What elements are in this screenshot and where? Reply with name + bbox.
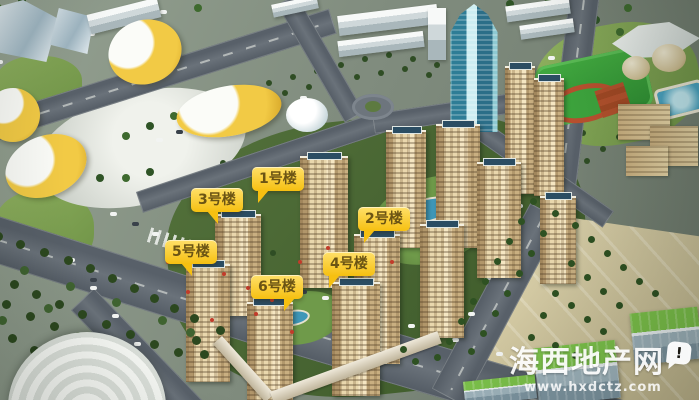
- building-callout-4[interactable]: 4号楼: [323, 252, 375, 276]
- building-callout-2[interactable]: 2号楼: [358, 207, 410, 231]
- watermark-url: www.hxdctz.com: [509, 380, 691, 395]
- watermark: 海西地产网 ! www.hxdctz.com: [509, 346, 691, 395]
- round-pavilion: [286, 98, 328, 132]
- callout-tail: [329, 275, 340, 288]
- building-callout-3[interactable]: 3号楼: [191, 188, 243, 212]
- building-callout-2-label: 2号楼: [365, 211, 403, 227]
- cylindrical-building: [652, 44, 686, 72]
- building-callout-4-label: 4号楼: [330, 256, 368, 272]
- building-callout-1-label: 1号楼: [259, 171, 297, 187]
- building-callout-3-label: 3号楼: [198, 192, 236, 208]
- cylindrical-building: [622, 56, 650, 80]
- exclamation-mark: !: [675, 344, 684, 363]
- residential-tower: [477, 162, 521, 278]
- residential-tower-5: [186, 264, 230, 382]
- aerial-rendering: 1号楼 2号楼 3号楼 4号楼 5号楼 6号楼 海西地产网 ! www.hxdc…: [0, 0, 699, 400]
- building-callout-6[interactable]: 6号楼: [251, 275, 303, 299]
- office-slab-building: [337, 4, 439, 36]
- callout-tail: [181, 263, 192, 276]
- residential-tower: [420, 224, 464, 338]
- glass-crystal-building: [0, 0, 58, 62]
- residential-tower: [534, 78, 564, 196]
- building-callout-5[interactable]: 5号楼: [165, 240, 217, 264]
- callout-tail: [207, 211, 218, 224]
- callout-tail: [258, 190, 269, 203]
- building-callout-6-label: 6号楼: [258, 279, 296, 295]
- building-callout-5-label: 5号楼: [172, 244, 210, 260]
- watermark-brand: 海西地产网: [509, 346, 664, 379]
- watermark-brand-row: 海西地产网 !: [509, 346, 691, 379]
- building-callout-1[interactable]: 1号楼: [252, 167, 304, 191]
- residential-tower: [540, 196, 576, 284]
- office-slab-building: [337, 31, 424, 57]
- roundabout: [352, 94, 394, 120]
- exclamation-bubble-icon: !: [666, 341, 692, 365]
- callout-tail: [364, 230, 375, 243]
- glass-landmark-tower: [443, 4, 505, 132]
- callout-tail: [284, 298, 295, 311]
- midrise-building: [626, 146, 668, 176]
- roundabout-island: [365, 101, 381, 112]
- office-slab-building: [428, 8, 446, 60]
